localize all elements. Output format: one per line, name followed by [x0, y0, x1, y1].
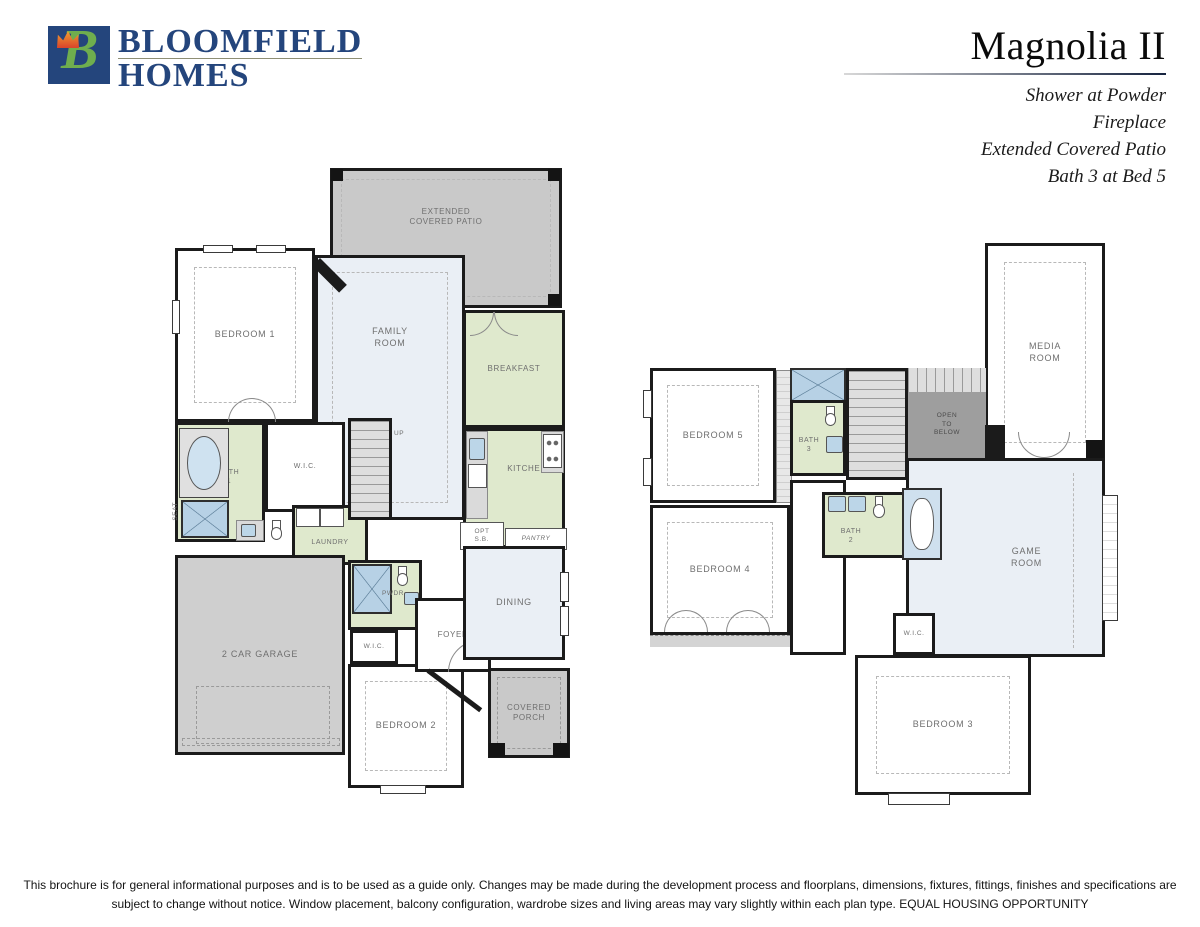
bath-sink [828, 496, 846, 512]
patio-post [548, 294, 560, 306]
powder-shower [352, 564, 392, 614]
shower [181, 500, 229, 538]
wall-block [985, 425, 1005, 462]
bath-sink [241, 524, 256, 537]
disclaimer: This brochure is for general information… [20, 876, 1180, 914]
room-label: DINING [496, 597, 532, 609]
title-block: Magnolia II Shower at Powder Fireplace E… [746, 22, 1166, 191]
kitchen-sink [469, 438, 485, 460]
room-label: PWDR [382, 590, 404, 598]
room-wic-master: W.I.C. [265, 422, 345, 512]
window [203, 245, 233, 253]
room-label: W.I.C. [904, 630, 925, 638]
garden-tub [179, 428, 229, 498]
dishwasher [468, 464, 487, 488]
room-bedroom-5: BEDROOM 5 [650, 368, 776, 503]
room-label: COVERED PORCH [507, 703, 551, 724]
stairs-down [846, 368, 908, 480]
logo-wordmark: BLOOMFIELD HOMES [118, 26, 362, 92]
room-label: BATH 3 [799, 436, 819, 454]
room-label: OPEN TO BELOW [934, 412, 960, 437]
open-to-below: OPEN TO BELOW [908, 392, 986, 458]
shower-seat-label: SEAT [172, 502, 180, 521]
porch-post [489, 743, 505, 757]
options-list: Shower at Powder Fireplace Extended Cove… [746, 83, 1166, 191]
room-label: EXTENDED COVERED PATIO [410, 207, 483, 228]
range-burners [543, 434, 562, 468]
window [256, 245, 286, 253]
room-label: MEDIA ROOM [1029, 341, 1061, 364]
patio-post [548, 169, 560, 181]
room-label: BEDROOM 5 [683, 430, 744, 442]
room-label: BEDROOM 4 [690, 564, 751, 576]
stairs-up-label: UP [394, 430, 404, 438]
disclaimer-line: subject to change without notice. Window… [20, 895, 1180, 914]
toilet [396, 566, 409, 586]
logo-line2: HOMES [118, 60, 362, 91]
toilet [824, 406, 837, 426]
room-label: BEDROOM 1 [215, 329, 276, 341]
fixture-label: OPT S.B. [475, 528, 490, 545]
room-label: BEDROOM 3 [913, 719, 974, 731]
room-label: LAUNDRY [311, 538, 348, 547]
logo-b-monogram: B [61, 18, 98, 82]
roof-ledge [650, 635, 790, 647]
room-label: W.I.C. [364, 643, 385, 651]
bloomfield-logo-icon: B [48, 26, 110, 84]
room-label: 2 CAR GARAGE [222, 649, 298, 661]
logo-line1: BLOOMFIELD [118, 26, 362, 57]
porch-post [553, 743, 569, 757]
bath-sink [826, 436, 843, 453]
stairs-up [348, 418, 392, 520]
room-garage: 2 CAR GARAGE [175, 555, 345, 755]
dryer [320, 508, 344, 527]
brochure-page: B BLOOMFIELD HOMES Magnolia II Shower at… [0, 0, 1200, 927]
room-label: PANTRY [522, 535, 551, 543]
patio-post [331, 169, 343, 181]
option-item: Bath 3 at Bed 5 [746, 164, 1166, 191]
plan-title: Magnolia II [746, 22, 1166, 69]
garage-door-dashes [196, 686, 330, 744]
wall-block [1086, 440, 1104, 460]
room-bedroom-1: BEDROOM 1 [175, 248, 315, 422]
window [560, 606, 569, 636]
toilet [872, 496, 886, 518]
room-dining: DINING [463, 546, 565, 660]
room-label: BREAKFAST [488, 364, 541, 374]
option-item: Shower at Powder [746, 83, 1166, 110]
window [643, 390, 652, 418]
window [560, 572, 569, 602]
option-item: Fireplace [746, 110, 1166, 137]
room-wic-bed2: W.I.C. [350, 630, 398, 664]
room-label: W.I.C. [294, 462, 316, 471]
stair-landing [908, 368, 986, 392]
bathtub [902, 488, 942, 560]
room-wic-bed3: W.I.C. [893, 613, 935, 655]
room-label: GAME ROOM [1011, 546, 1042, 569]
disclaimer-line: This brochure is for general information… [20, 876, 1180, 895]
window [172, 300, 180, 334]
toilet [270, 520, 283, 540]
title-rule [844, 73, 1166, 75]
ceiling-tray [1073, 473, 1074, 648]
window-bay [1102, 495, 1118, 621]
bath-sink [848, 496, 866, 512]
room-label: FAMILY ROOM [372, 326, 408, 349]
window [380, 785, 426, 794]
room-label: BATH 2 [841, 527, 861, 545]
room-label: BEDROOM 2 [376, 720, 437, 732]
window-bump [888, 793, 950, 805]
bloomfield-logo: B BLOOMFIELD HOMES [48, 26, 362, 92]
room-bedroom-3: BEDROOM 3 [855, 655, 1031, 795]
bath3-shower [790, 368, 846, 402]
option-item: Extended Covered Patio [746, 137, 1166, 164]
window [643, 458, 652, 486]
washer [296, 508, 320, 527]
garage-apron-dashes [182, 738, 340, 746]
